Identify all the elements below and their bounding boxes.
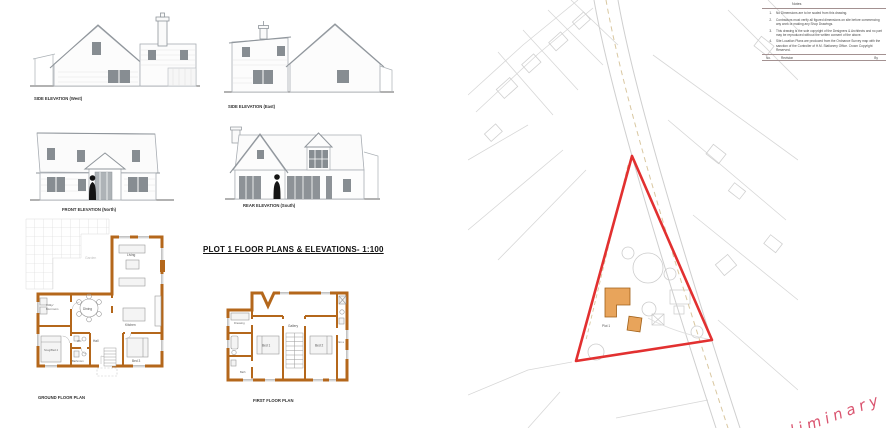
window [343, 179, 351, 192]
bed3-label: Bed 3 [132, 359, 141, 363]
sheet-heading: PLOT 1 FLOOR PLANS & ELEVATIONS- 1:100 [203, 245, 384, 254]
window [277, 46, 285, 56]
chimney-breast [160, 260, 165, 272]
note-number: 1. [766, 11, 772, 15]
gable-wall [290, 25, 380, 92]
window [148, 50, 156, 60]
hall-label: Hall [93, 339, 99, 343]
stairs [286, 333, 303, 368]
snug-label: Snug/Bed 4 [44, 348, 59, 352]
notes-title: Notes [792, 2, 886, 7]
window [180, 50, 188, 60]
dressing-label: Dressing [234, 321, 245, 325]
side-elevation-west-label: SIDE ELEVATION (West) [34, 96, 83, 101]
note-number: 4. [766, 39, 772, 51]
bathtub [231, 336, 238, 349]
window [128, 177, 148, 192]
garage-door [168, 68, 196, 86]
side-elevation-east-label: SIDE ELEVATION (East) [228, 104, 276, 109]
bath-label: Bath [240, 370, 246, 374]
revision-header: Revision [781, 56, 793, 60]
front-elevation-north-drawing: FRONT ELEVATION (North) [28, 122, 178, 214]
person-silhouette [89, 175, 96, 200]
note-row: 4. Site Location Plans are produced from… [766, 39, 886, 51]
note-row: 3. This drawing is the sole copyright of… [766, 29, 886, 37]
note-number: 3. [766, 29, 772, 37]
parcel-lines [468, 0, 798, 428]
dining-label: Dining [83, 307, 92, 311]
lower-window [108, 70, 130, 83]
revision-no-header: No. [766, 56, 771, 60]
note-row: 1. No Dimensions are to be scaled from t… [766, 11, 886, 15]
ground-floor-plan-drawing: Garden [25, 218, 185, 403]
kitchen-island [123, 308, 145, 321]
garden-label: Garden [85, 256, 96, 260]
bathroom-label: Bathroom [72, 359, 84, 363]
gable-window [92, 42, 101, 55]
plot1-garage-footprint [627, 316, 642, 332]
wardrobe [231, 313, 249, 320]
bed [127, 338, 148, 357]
front-door [95, 172, 112, 200]
note-text: Site Location Plans are produced from th… [776, 39, 886, 51]
note-row: 2. Contractors must verify all figured d… [766, 18, 886, 26]
gallery-label: Gallery [288, 324, 299, 328]
first-floor-plan-drawing: Dressing Bed 1 Gallery Bed 2 En-s Bath F… [225, 288, 360, 406]
note-text: Contractors must verify all figured dime… [776, 18, 886, 26]
bed2-label: Bed 2 [315, 344, 324, 348]
sofa [119, 245, 145, 253]
divider [762, 8, 886, 9]
ensuite-label: En-s [339, 340, 345, 344]
living-label: Living [127, 253, 136, 257]
roof-window [132, 150, 140, 162]
revision-table-header: No. Revision By [762, 54, 886, 61]
lean-to [364, 152, 378, 199]
person-silhouette [274, 174, 281, 199]
first-floor-plan-label: FIRST FLOOR PLAN [253, 398, 293, 403]
lower-window [253, 70, 273, 84]
plot1-house-footprint [605, 288, 630, 317]
chimney [259, 21, 269, 39]
carport [33, 54, 55, 86]
plot1-label: Plot 1 [602, 324, 610, 328]
coffee-table [126, 260, 139, 269]
roof-window [77, 150, 85, 162]
utility-label-2: Boot room [46, 307, 59, 311]
ground-floor-plan-label: GROUND FLOOR PLAN [38, 395, 85, 400]
porch-canopy [97, 368, 117, 376]
rear-door [326, 176, 332, 199]
front-elevation-north-label: FRONT ELEVATION (North) [62, 207, 117, 212]
site-plan-drawing: Plot 1 [468, 0, 798, 428]
window [242, 47, 250, 57]
kitchen-counter [155, 296, 161, 326]
roof-window [47, 148, 55, 160]
neighbour-houses [484, 12, 782, 314]
revision-by-header: By [874, 56, 878, 60]
drawing-sheet: SIDE ELEVATION (West) SIDE ELEVATION (Ea… [0, 0, 886, 428]
rear-elevation-south-label: REAR ELEVATION (South) [243, 203, 296, 208]
sofa [119, 278, 145, 286]
wc-label: WC [77, 339, 82, 343]
note-text: This drawing is the sole copyright of th… [776, 29, 886, 37]
utility-label-1: Utility/ [46, 303, 54, 307]
note-text: No Dimensions are to be scaled from this… [776, 11, 886, 15]
rear-elevation-south-drawing: REAR ELEVATION (South) [225, 122, 385, 210]
window [78, 179, 86, 191]
note-number: 2. [766, 18, 772, 26]
window [47, 177, 65, 192]
garden-paving [26, 219, 109, 289]
road-centreline [606, 0, 728, 428]
side-elevation-east-drawing: SIDE ELEVATION (East) [222, 20, 397, 115]
stairs [104, 348, 116, 366]
chimney [156, 13, 169, 46]
gable-window [337, 70, 349, 83]
glazed-doors-center [287, 176, 320, 199]
glazed-doors-left [239, 176, 261, 199]
notes-panel: Notes 1. No Dimensions are to be scaled … [762, 2, 886, 61]
lean-to [380, 66, 392, 92]
gable-window [257, 150, 264, 159]
kitchen-label: Kitchen [125, 323, 136, 327]
side-elevation-west-drawing: SIDE ELEVATION (West) [28, 6, 203, 106]
bed1-label: Bed 1 [262, 344, 271, 348]
